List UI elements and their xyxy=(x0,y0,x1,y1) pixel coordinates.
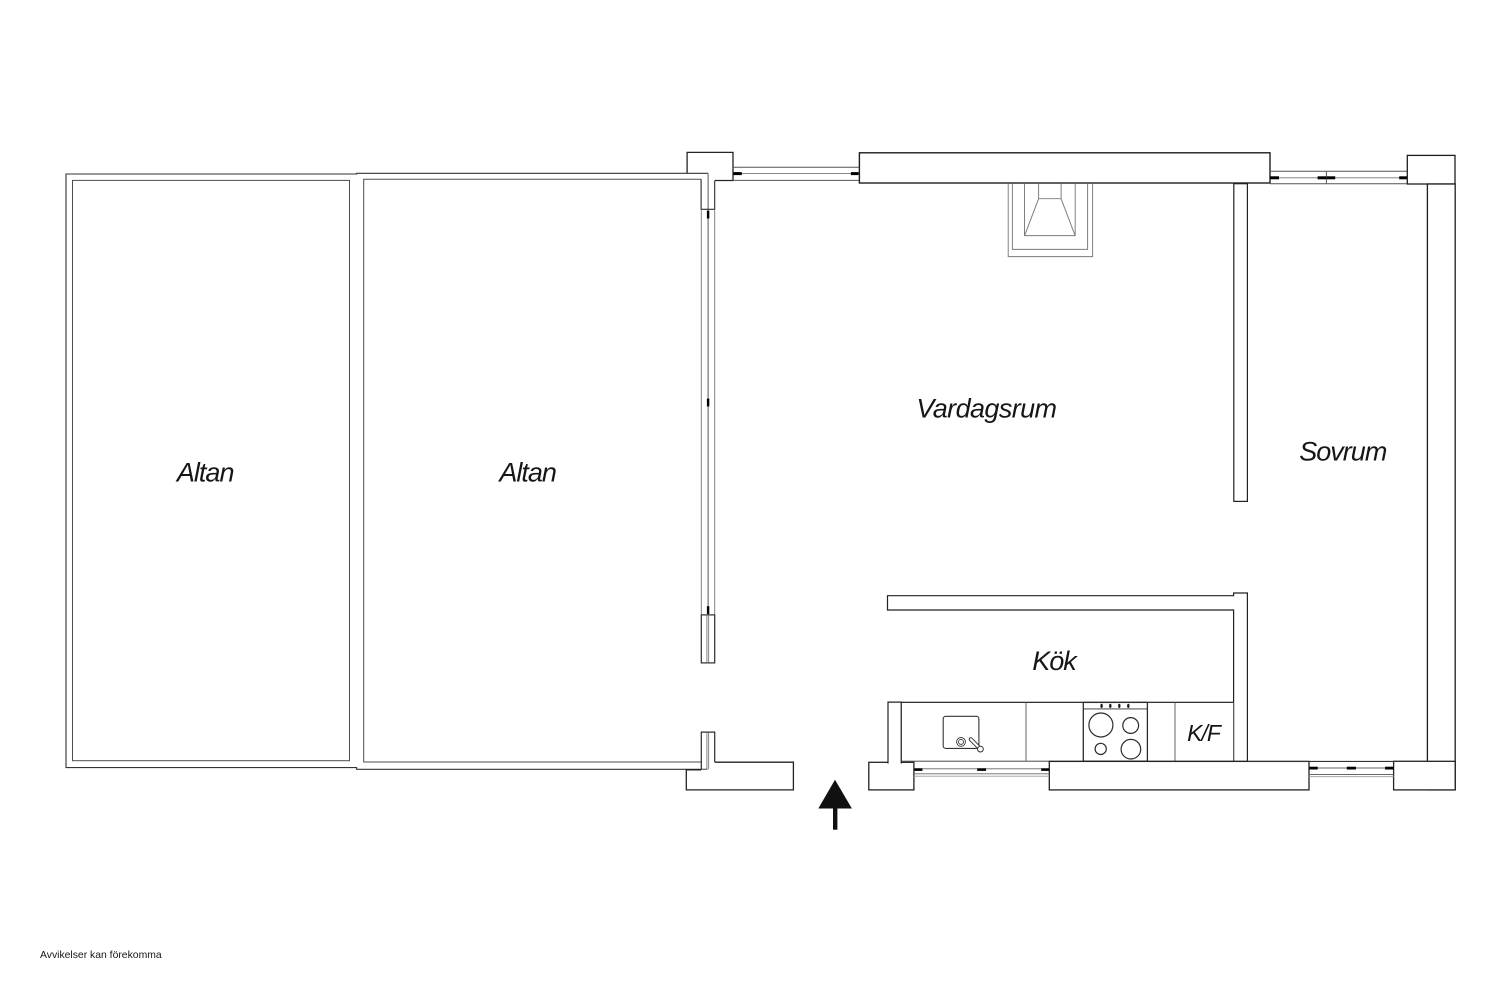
svg-text:Sovrum: Sovrum xyxy=(1299,436,1387,466)
svg-text:Vardagsrum: Vardagsrum xyxy=(916,394,1056,424)
svg-text:Altan: Altan xyxy=(175,457,234,487)
svg-text:K/F: K/F xyxy=(1187,720,1223,746)
svg-text:Altan: Altan xyxy=(497,457,556,487)
svg-text:Avvikelser kan förekomma: Avvikelser kan förekomma xyxy=(40,950,162,961)
svg-text:Kök: Kök xyxy=(1032,646,1078,676)
